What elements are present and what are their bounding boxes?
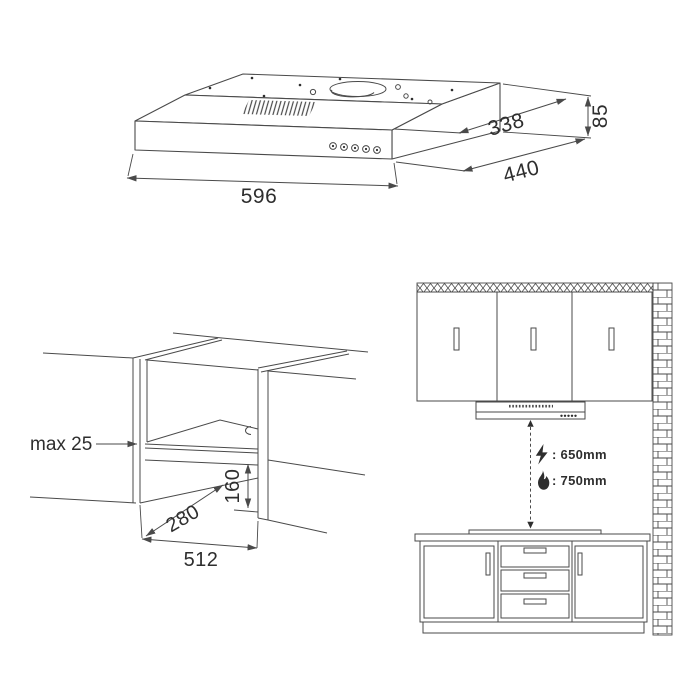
base-cabinet [415, 530, 650, 633]
technical-drawing: 596 440 338 85 [0, 0, 700, 700]
countertop [415, 534, 650, 541]
recess-height-dimension: 160 [222, 469, 244, 504]
cabinet-door-handle [531, 328, 536, 350]
installation-clearance-view: : 650mm : 750mm [415, 283, 672, 635]
cabinet-door-handle [454, 328, 459, 350]
base-door-left [424, 546, 494, 618]
drawer [501, 546, 569, 567]
hood-body [135, 74, 500, 159]
clearance-annotation: : 650mm : 750mm [527, 420, 607, 529]
drawer-handle [524, 573, 546, 578]
electric-clearance-label: : 650mm [552, 447, 607, 462]
hood-depth-dimension: 440 [501, 156, 542, 187]
base-door-right [575, 546, 643, 618]
opening-width-dimension: 512 [184, 549, 219, 571]
gas-clearance-label: : 750mm [552, 473, 607, 488]
cabinet-door-handle [609, 328, 614, 350]
door-handle [578, 553, 582, 575]
hood-height-dimension: 85 [589, 104, 612, 128]
mounted-hood [476, 402, 585, 419]
hob [469, 530, 601, 534]
arrow-down [527, 522, 533, 529]
plinth [423, 622, 644, 633]
panel-thickness-label: max 25 [30, 434, 92, 455]
drawer-handle [524, 548, 546, 553]
cabinet-cutout-view: max 25 160 280 512 [30, 333, 368, 571]
brick-wall [653, 283, 672, 635]
shelf-hole [246, 427, 252, 435]
hood-isometric-view: 596 440 338 85 [127, 74, 612, 208]
hood-buttons-dots [560, 415, 576, 417]
door-handle [486, 553, 490, 575]
hood-width-dimension: 596 [241, 185, 278, 208]
drawer [501, 594, 569, 618]
cutout-structure [30, 333, 368, 533]
lightning-bolt-icon [536, 444, 548, 465]
drawer-handle [524, 599, 546, 604]
arrow-up [527, 420, 533, 427]
grease-grille-hatch [242, 100, 316, 116]
recess-depth-dimension: 280 [162, 501, 203, 537]
appliance-installation-sheet: 596 440 338 85 [0, 0, 700, 700]
flame-icon [538, 471, 549, 490]
ceiling-hatch-band [417, 283, 653, 292]
upper-cabinets [417, 292, 652, 401]
